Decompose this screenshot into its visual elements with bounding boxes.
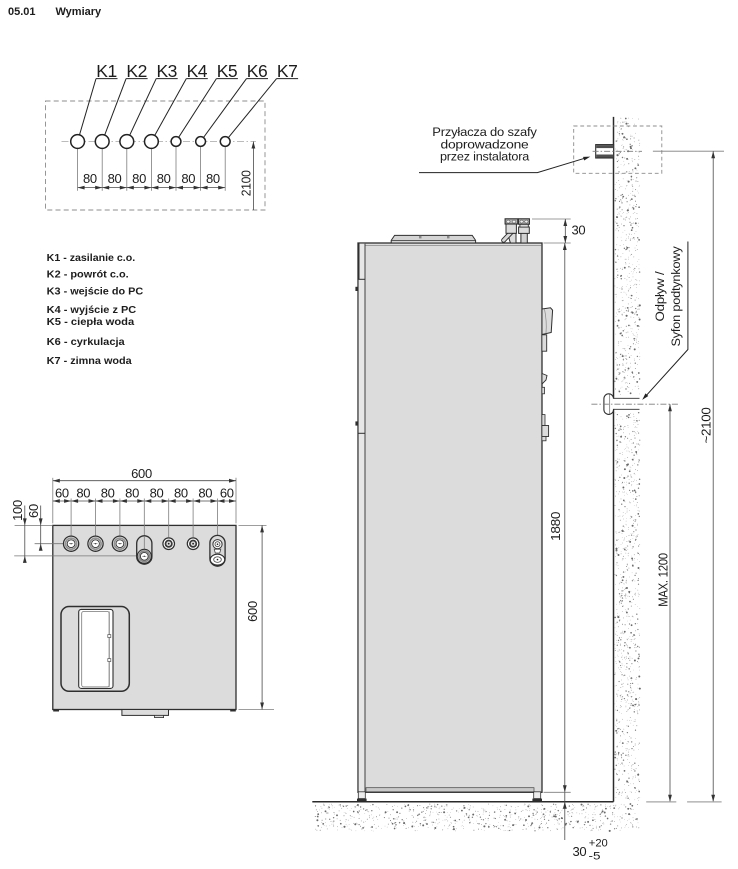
svg-text:K2 - powrót c.o.: K2 - powrót c.o.: [47, 268, 129, 280]
svg-text:60: 60: [26, 504, 41, 518]
svg-text:80: 80: [206, 171, 220, 186]
svg-text:Wymiary: Wymiary: [56, 6, 103, 18]
svg-text:600: 600: [245, 601, 260, 622]
svg-text:2100: 2100: [238, 170, 253, 196]
svg-text:80: 80: [108, 171, 122, 186]
svg-text:MAX. 1200: MAX. 1200: [656, 553, 671, 607]
svg-text:80: 80: [83, 171, 97, 186]
svg-text:K1: K1: [96, 61, 116, 81]
svg-text:K3: K3: [156, 61, 176, 81]
svg-text:80: 80: [125, 485, 139, 500]
svg-text:80: 80: [174, 485, 188, 500]
svg-text:K2: K2: [126, 61, 146, 81]
svg-text:przez instalatora: przez instalatora: [440, 150, 529, 164]
svg-text:80: 80: [198, 485, 212, 500]
svg-text:K3 - wejście do PC: K3 - wejście do PC: [47, 286, 144, 298]
svg-text:05.01: 05.01: [8, 6, 36, 18]
svg-text:K4: K4: [187, 61, 208, 81]
svg-text:K6 - cyrkulacja: K6 - cyrkulacja: [47, 336, 125, 348]
svg-text:-5: -5: [589, 851, 601, 863]
svg-text:K7: K7: [277, 61, 297, 81]
svg-text:80: 80: [181, 171, 195, 186]
svg-text:Odpływ /: Odpływ /: [653, 271, 667, 322]
svg-text:+20: +20: [589, 837, 608, 849]
svg-text:Syfon podtynkowy: Syfon podtynkowy: [669, 245, 683, 346]
svg-text:60: 60: [55, 485, 69, 500]
svg-text:30: 30: [572, 223, 586, 238]
svg-text:80: 80: [101, 485, 115, 500]
svg-text:80: 80: [150, 485, 164, 500]
svg-text:600: 600: [131, 466, 152, 481]
svg-text:K5 - ciepła woda: K5 - ciepła woda: [47, 316, 135, 328]
svg-text:K1 - zasilanie c.o.: K1 - zasilanie c.o.: [47, 252, 136, 264]
svg-text:~2100: ~2100: [699, 407, 714, 443]
svg-text:K5: K5: [217, 61, 237, 81]
svg-text:80: 80: [76, 485, 90, 500]
svg-text:K4 - wyjście z PC: K4 - wyjście z PC: [47, 304, 137, 316]
svg-text:60: 60: [220, 485, 234, 500]
svg-text:1880: 1880: [548, 512, 563, 541]
svg-text:K6: K6: [247, 61, 267, 81]
svg-text:K7 - zimna woda: K7 - zimna woda: [47, 355, 132, 367]
svg-text:80: 80: [157, 171, 171, 186]
svg-text:30: 30: [573, 844, 587, 859]
svg-text:80: 80: [132, 171, 146, 186]
svg-text:100: 100: [10, 500, 25, 521]
